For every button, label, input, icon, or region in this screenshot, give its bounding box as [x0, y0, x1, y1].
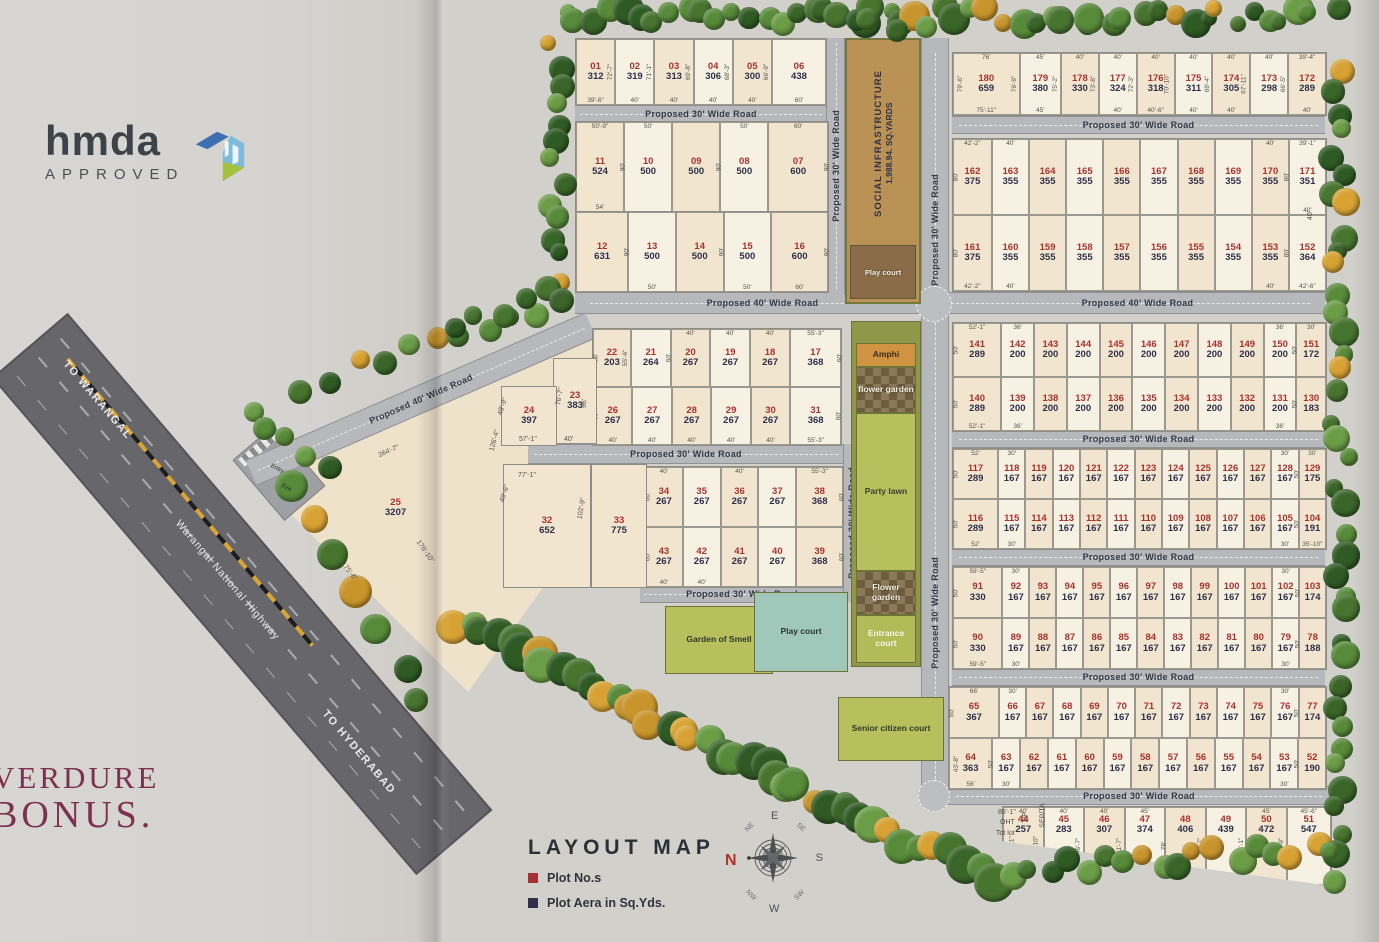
- plot-area: 267: [605, 416, 621, 426]
- plot-area: 355: [1114, 177, 1130, 187]
- dimension-label: 40': [660, 579, 668, 586]
- plot-156: 156355: [1140, 215, 1177, 291]
- tree-icon: [1329, 675, 1352, 698]
- tree-icon: [1108, 7, 1131, 30]
- dimension-label: 40': [1303, 107, 1311, 114]
- dimension-label: 67'-11": [1240, 74, 1247, 94]
- plot-146: 146200: [1132, 323, 1165, 377]
- plot-area: 200: [1239, 404, 1255, 414]
- plot-number: 102: [1278, 582, 1294, 592]
- plot-number: 69: [1089, 702, 1100, 712]
- dimension-label: 50': [1292, 346, 1299, 354]
- dimension-label: 66': [970, 688, 978, 695]
- dimension-label: 79'-6": [957, 76, 964, 93]
- plot-area: 167: [1251, 593, 1267, 603]
- amphi: Amphi: [856, 343, 916, 367]
- plot-area: 167: [1193, 764, 1209, 774]
- plot-area: 355: [1151, 177, 1167, 187]
- flower-garden: Flower garden: [856, 571, 916, 615]
- dimension-label: 30': [1308, 450, 1316, 457]
- dimension-label: 60': [666, 354, 673, 362]
- plot-area: 167: [1005, 713, 1021, 723]
- dimension-label: 50': [949, 708, 956, 716]
- dimension-label: 70'-10": [1164, 74, 1171, 94]
- plot-area: 267: [732, 497, 748, 507]
- plot-area: 167: [1086, 713, 1102, 723]
- plot-area: 267: [656, 497, 672, 507]
- dimension-label: 30': [1280, 781, 1288, 788]
- road: Proposed 30' Wide Road: [952, 430, 1325, 448]
- plot-137: 137200: [1067, 377, 1100, 431]
- plot-area: 167: [1170, 593, 1186, 603]
- plot-125: 125167: [1189, 449, 1216, 499]
- plot-93: 93167: [1029, 567, 1056, 618]
- plot-area-color-swatch: [528, 898, 538, 908]
- plot-160: 16035540': [992, 215, 1029, 291]
- plot-114: 114167: [1025, 499, 1052, 549]
- plot-number: 73: [1198, 702, 1209, 712]
- dimension-label: 68'-3": [724, 64, 731, 81]
- plot-number: 99: [1199, 582, 1210, 592]
- tree-icon: [464, 306, 483, 325]
- plot-area: 500: [739, 252, 755, 262]
- plot-area: 167: [1249, 764, 1265, 774]
- plot-number: 97: [1145, 582, 1156, 592]
- dimension-label: 90': [823, 163, 830, 171]
- plot-117: 11728952'50': [953, 449, 998, 499]
- plot-area: 374: [1137, 825, 1153, 835]
- dimension-label: 50': [1293, 759, 1300, 767]
- tree-icon: [738, 7, 759, 28]
- layout-map-page: 25 3207 TO WARANGAL Warangal National Hi…: [0, 0, 1379, 942]
- plot-area: 289: [968, 474, 984, 484]
- plot-32: 32652: [503, 464, 591, 588]
- plot-number: 70: [1116, 702, 1127, 712]
- plot-area: 200: [1042, 350, 1058, 360]
- compass-sw: SW: [793, 889, 806, 902]
- plot-area: 355: [1151, 253, 1167, 263]
- plot-row: 11728952'50'11816730'1191671201671211671…: [953, 449, 1326, 499]
- dimension-label: 50': [648, 284, 656, 291]
- plot-number: 96: [1119, 582, 1130, 592]
- dimension-label: 40': [1266, 140, 1274, 147]
- plot-174: 17430540'40'67'-11": [1212, 53, 1250, 115]
- plot-row: 14128952'-1"50'14220036'1432001442001452…: [953, 323, 1326, 377]
- plot-area: 355: [1077, 253, 1093, 263]
- tree-icon: [1325, 753, 1345, 773]
- social-infra-area: 1,988.94. SQ.YARDS: [884, 70, 894, 217]
- road: Proposed 30' Wide RoadProposed 30' Wide …: [921, 38, 949, 804]
- dimension-label: 60': [795, 97, 803, 104]
- plot-100: 100167: [1218, 567, 1245, 618]
- plot-104: 10419135'-10": [1299, 499, 1326, 549]
- blk-01-06: 0131239'-6"72'-7"0231940'71'-1"0331340'6…: [575, 38, 827, 106]
- plot-area: 355: [1262, 177, 1278, 187]
- dimension-label: 50': [644, 123, 652, 130]
- plot-area: 200: [1010, 350, 1026, 360]
- plot-179: 17938045'45'75'-2": [1020, 53, 1061, 115]
- tree-icon: [253, 417, 276, 440]
- legend-title: LAYOUT MAP: [528, 836, 715, 860]
- plot-area: 167: [1277, 713, 1293, 723]
- plot-124: 124167: [1162, 449, 1189, 499]
- dimension-label: 52': [971, 450, 979, 457]
- blk-34-43: 3426740'60'352673626740'372673836855'-3"…: [644, 466, 844, 588]
- plot-area: 167: [1168, 474, 1184, 484]
- dimension-label: 40': [608, 437, 616, 444]
- plot-number: 76: [1280, 702, 1291, 712]
- plot-65: 6536766'50': [949, 687, 999, 738]
- plot-area: 167: [1277, 524, 1293, 534]
- dimension-label: 36': [1013, 324, 1021, 331]
- tagline-line1: VERDURE: [0, 760, 159, 796]
- dimension-label: 80': [953, 173, 960, 181]
- plot-168: 168355: [1178, 139, 1215, 215]
- plot-number: 86: [1092, 633, 1103, 643]
- road-label: Proposed 30' Wide Road: [1083, 434, 1195, 444]
- dimension-label: 50'-9": [592, 123, 609, 130]
- plot-81: 81167: [1218, 618, 1245, 669]
- tree-icon: [554, 173, 577, 196]
- plot-43: 4326740'60': [645, 527, 683, 587]
- blk-152-171: 16237542'-2"80'16335540'1643551653551663…: [952, 138, 1327, 292]
- plot-area: 167: [1089, 644, 1105, 654]
- dimension-label: 40': [748, 97, 756, 104]
- amenity-label: Senior citizen court: [852, 724, 931, 734]
- roundabout: [916, 286, 952, 322]
- plot-58: 58167: [1131, 738, 1159, 789]
- dimension-label: 59'-5": [969, 661, 986, 668]
- plot-area: 200: [1141, 350, 1157, 360]
- dimension-label: 54': [596, 204, 604, 211]
- plot-08: 0850050': [720, 122, 768, 212]
- plot-173: 17329840'66'-5": [1250, 53, 1288, 115]
- plot-area: 355: [1003, 253, 1019, 263]
- plot-area: 167: [1222, 474, 1238, 484]
- plot-35: 35267: [683, 467, 721, 527]
- plot-135: 135200: [1132, 377, 1165, 431]
- plot-area: 524: [592, 167, 608, 177]
- plot-132: 132200: [1231, 377, 1264, 431]
- tree-icon: [1324, 796, 1344, 816]
- plot-180: 18065976'75'-11"76'-9"79'-6": [953, 53, 1020, 115]
- plot-28: 2826740': [672, 387, 711, 445]
- dimension-label: 55'-3": [811, 468, 828, 475]
- plot-area: 289: [968, 524, 984, 534]
- plot-89: 8916730': [1002, 618, 1029, 669]
- dimension-label: 52': [971, 541, 979, 548]
- plot-10: 1050050': [624, 122, 672, 212]
- plot-number: 81: [1226, 633, 1237, 643]
- dimension-label: 40': [686, 330, 694, 337]
- plot-99: 99167: [1191, 567, 1218, 618]
- dimension-label: 40': [1060, 808, 1068, 815]
- plot-area: 368: [808, 416, 824, 426]
- tree-icon: [1132, 845, 1152, 865]
- plot-area: 267: [732, 557, 748, 567]
- road-label: Proposed 30' Wide Road: [645, 109, 757, 119]
- plot-71: 71167: [1135, 687, 1162, 738]
- plot-area: 438: [791, 72, 807, 82]
- plot-82: 82167: [1191, 618, 1218, 669]
- plot-18: 1826740': [750, 329, 790, 387]
- plot-row: 9033059'-5"50'8916730'881678716786167851…: [953, 618, 1326, 669]
- plot-area: 289: [969, 404, 985, 414]
- road: Proposed 30' Wide Road: [952, 116, 1325, 134]
- plot-number: 62: [1029, 753, 1040, 763]
- tree-icon: [823, 2, 849, 28]
- plot-area: 397: [521, 416, 537, 426]
- blk-172-180: 18065976'75'-11"76'-9"79'-6"17938045'45'…: [952, 52, 1327, 116]
- plot-61: 61167: [1048, 738, 1076, 789]
- plot-area: 313: [666, 72, 682, 82]
- plot-101: 101167: [1245, 567, 1272, 618]
- plot-150: 15020036'50': [1264, 323, 1297, 377]
- plot-area: 500: [736, 167, 752, 177]
- plot-area: 307: [1096, 825, 1112, 835]
- plot-area: 267: [769, 497, 785, 507]
- dimension-label: T/P: [1022, 812, 1029, 823]
- plot-area: 167: [1223, 713, 1239, 723]
- dimension-label: 45': [1141, 808, 1149, 815]
- dimension-label: 96': [581, 399, 589, 409]
- plot-area: 355: [1262, 253, 1278, 263]
- page-fold: [416, 0, 452, 942]
- plot-number: 72: [1171, 702, 1182, 712]
- plot-175: 17531140'40'69'-4": [1175, 53, 1213, 115]
- dimension-label: 40': [1307, 211, 1314, 220]
- tree-icon: [1329, 356, 1352, 379]
- plot-155: 155355: [1178, 215, 1215, 291]
- plot-number: 94: [1065, 582, 1076, 592]
- dimension-label: 55'-3": [807, 330, 824, 337]
- dimension-label: 52'-1": [969, 324, 986, 331]
- legend-item-plot-no: Plot No.s: [528, 871, 715, 885]
- plot-20: 2026740': [671, 329, 711, 387]
- dimension-label: 75'-11": [976, 107, 996, 114]
- plot-119: 119167: [1025, 449, 1052, 499]
- plot-90: 9033059'-5"50': [953, 618, 1002, 669]
- plot-area: 167: [1276, 764, 1292, 774]
- plot-number: 52: [1307, 753, 1318, 763]
- plot-area: 375: [965, 177, 981, 187]
- tree-icon: [1074, 3, 1105, 34]
- plot-area: 174: [1305, 593, 1321, 603]
- plot-166: 166355: [1103, 139, 1140, 215]
- plot-68: 68167: [1053, 687, 1080, 738]
- plot-area: 367: [966, 713, 982, 723]
- dimension-label: 39'-4": [1299, 54, 1316, 61]
- dimension-label: 50': [953, 520, 960, 528]
- dimension-label: 66'-5": [1279, 76, 1286, 93]
- plot-110: 110167: [1135, 499, 1162, 549]
- plot-area: 172: [1303, 350, 1319, 360]
- plot-number: 66: [1007, 702, 1018, 712]
- plot-number: 83: [1172, 633, 1183, 643]
- plot-area: 167: [1035, 644, 1051, 654]
- plot-area: 257: [1015, 825, 1031, 835]
- dimension-label: 69'-8": [685, 64, 692, 81]
- plot-12: 1263190': [576, 212, 628, 292]
- plot-number: 88: [1038, 633, 1049, 643]
- tree-icon: [516, 288, 537, 309]
- plot-area: 330: [970, 593, 986, 603]
- tree-icon: [1323, 870, 1346, 893]
- dimension-label: 50': [988, 759, 995, 767]
- plot-41: 41267: [721, 527, 759, 587]
- dimension-label: 40': [1076, 54, 1084, 61]
- plot-area: 289: [969, 350, 985, 360]
- plot-area: 298: [1261, 84, 1277, 94]
- plot-127: 127167: [1244, 449, 1271, 499]
- plot-area: 200: [1108, 404, 1124, 414]
- plot-area: 368: [812, 497, 828, 507]
- dimension-label: 50': [953, 639, 960, 647]
- plot-area: 200: [1174, 404, 1190, 414]
- dimension-label: 71'-1": [646, 64, 653, 81]
- verdure-bonus-tagline: VERDURE BONUS.: [0, 760, 159, 834]
- plot-area: 355: [1114, 253, 1130, 263]
- plot-106: 106167: [1244, 499, 1271, 549]
- plot-number: 75: [1253, 702, 1264, 712]
- plot-40: 40267: [758, 527, 796, 587]
- plot-area: 167: [1116, 593, 1132, 603]
- plot-79: 7916730'50': [1272, 618, 1299, 669]
- plot-number: 71: [1144, 702, 1155, 712]
- plot-number: 53: [1279, 753, 1290, 763]
- plot-area: 200: [1239, 350, 1255, 360]
- party-lawn: Party lawn: [856, 413, 916, 571]
- plot-80: 80167: [1245, 618, 1272, 669]
- plot-area: 439: [1218, 825, 1234, 835]
- plot-96: 96167: [1110, 567, 1137, 618]
- tree-icon: [1148, 0, 1169, 21]
- plot-number: 82: [1199, 633, 1210, 643]
- tree-icon: [658, 2, 679, 23]
- tree-icon: [1230, 16, 1246, 32]
- plot-area: 167: [1082, 764, 1098, 774]
- plot-area: 167: [1195, 713, 1211, 723]
- dimension-label: 52'-1": [969, 423, 986, 430]
- dimension-label: 30': [1002, 781, 1010, 788]
- plot-02: 0231940'71'-1": [615, 39, 654, 105]
- tree-icon: [295, 446, 316, 467]
- blk-130-151: 14128952'-1"50'14220036'1432001442001452…: [952, 322, 1327, 432]
- plot-area: 355: [1225, 253, 1241, 263]
- dimension-label: 55'-3": [807, 437, 824, 444]
- plot-area: 167: [1168, 713, 1184, 723]
- plot-area: 190: [1304, 764, 1320, 774]
- dimension-label: 90': [623, 248, 630, 256]
- play-court: Play court: [754, 592, 848, 672]
- tree-icon: [540, 35, 556, 51]
- plot-row: 16237542'-2"80'16335540'1643551653551663…: [953, 139, 1326, 215]
- plot-area: 368: [808, 358, 824, 368]
- dimension-label: 50': [1294, 520, 1301, 528]
- plot-126: 126167: [1217, 449, 1244, 499]
- social-infra-title: SOCIAL INFRASTRUCTURE: [873, 70, 884, 217]
- plot-area: 600: [792, 252, 808, 262]
- dimension-label: 40': [670, 97, 678, 104]
- plot-176: 17631840'40'-6"70'-10": [1137, 53, 1175, 115]
- dimension-label: 50': [740, 123, 748, 130]
- plot-70: 70167: [1108, 687, 1135, 738]
- plot-number: 87: [1065, 633, 1076, 643]
- road-label: Proposed 30' Wide Road: [831, 110, 841, 222]
- plot-area: 324: [1110, 84, 1126, 94]
- amenity-label: Garden of Smell: [686, 635, 751, 645]
- tree-icon: [318, 456, 341, 479]
- dimension-label: 66'-9": [763, 64, 770, 81]
- plot-area: 319: [627, 72, 643, 82]
- plot-98: 98167: [1164, 567, 1191, 618]
- blk-78-103: 9133059'-5"50'9216730'931679416795167961…: [952, 566, 1327, 670]
- plot-134: 134200: [1165, 377, 1198, 431]
- plot-area: 167: [1278, 644, 1294, 654]
- plot-143: 143200: [1034, 323, 1067, 377]
- dimension-label: 40': [660, 468, 668, 475]
- plot-141: 14128952'-1"50': [953, 323, 1001, 377]
- dimension-label: Tot lot: [996, 830, 1015, 837]
- plot-row: 1152450'-9"54'90'1050050'0950090'0850050…: [576, 122, 828, 212]
- plot-row: 6536766'50'6616730'671676816769167701677…: [949, 687, 1326, 738]
- dimension-label: 40': [1006, 140, 1014, 147]
- road-label: Proposed 30' Wide Road: [1083, 552, 1195, 562]
- plot-13: 1350050': [628, 212, 676, 292]
- dimension-label: 40': [766, 437, 774, 444]
- plot-86: 86167: [1083, 618, 1110, 669]
- map-legend: LAYOUT MAP Plot No.s Plot Aera in Sq.Yds…: [528, 836, 715, 910]
- plot-21: 2126460': [631, 329, 671, 387]
- plot-area: 200: [1042, 404, 1058, 414]
- legend-label: Plot No.s: [547, 871, 601, 885]
- plot-area: 375: [965, 253, 981, 263]
- plot-74: 74167: [1217, 687, 1244, 738]
- plot-area: 267: [683, 358, 699, 368]
- dimension-label: 39'-6": [587, 97, 604, 104]
- dimension-label: 30': [1281, 568, 1289, 575]
- plot-area: 167: [1058, 524, 1074, 534]
- plot-area: 188: [1305, 644, 1321, 654]
- plot-77: 77174: [1299, 687, 1326, 738]
- plot-area: 167: [1035, 593, 1051, 603]
- dimension-label: 40': [1227, 54, 1235, 61]
- plot-area: 167: [1251, 644, 1267, 654]
- plot-142: 14220036': [1001, 323, 1034, 377]
- plot-36: 3626740': [721, 467, 759, 527]
- plot-165: 165355: [1066, 139, 1103, 215]
- dimension-label: 75'-2": [1052, 76, 1059, 93]
- plot-area: 191: [1304, 524, 1320, 534]
- dimension-label: 77'-1": [518, 472, 536, 479]
- plot-97: 97167: [1137, 567, 1164, 618]
- plot-area: 311: [1186, 84, 1201, 94]
- road-label: Proposed 30' Wide Road: [930, 174, 940, 286]
- plot-94: 94167: [1056, 567, 1083, 618]
- plot-area: 267: [684, 416, 700, 426]
- tree-icon: [1332, 716, 1353, 737]
- compass-star: [747, 832, 799, 884]
- plot-number: 90: [972, 633, 983, 643]
- plot-area: 330: [1072, 84, 1088, 94]
- plot-153: 15335540'80': [1252, 215, 1289, 291]
- plot-area: 167: [1197, 593, 1213, 603]
- plot-area: 775: [611, 526, 627, 536]
- plot-row: 1263190'1350050'1450090'1550050'1660060'…: [576, 212, 828, 292]
- dimension-label: 42'-2": [964, 140, 981, 147]
- dimension-label: 42'-6": [1299, 283, 1316, 290]
- plot-138: 138200: [1034, 377, 1067, 431]
